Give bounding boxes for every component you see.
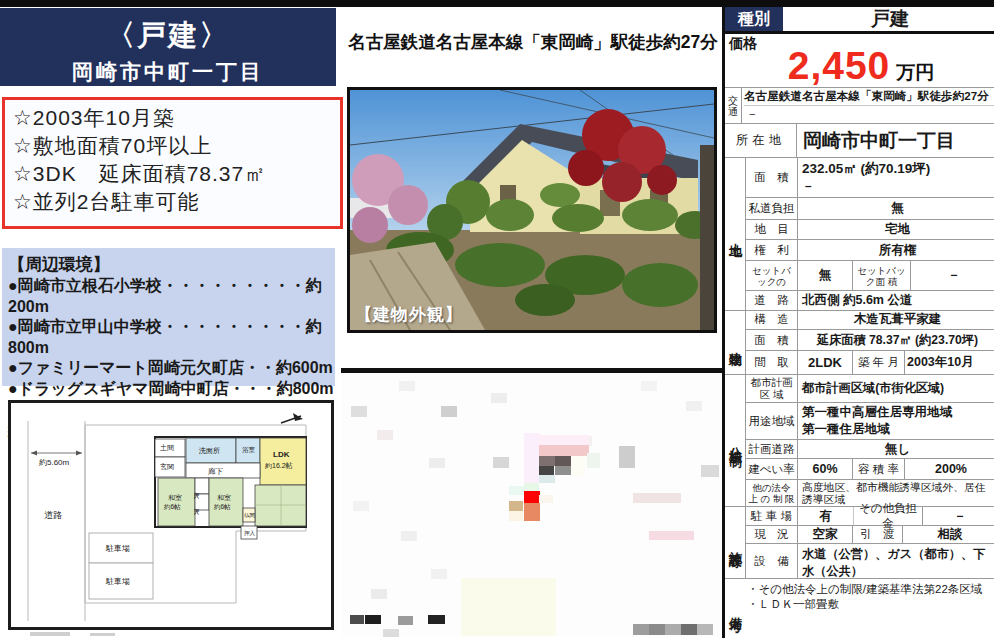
map-mosaic-cell [649,531,694,540]
north-arrow-icon [281,413,303,423]
remarks-line2: ・ＬＤＫ一部畳敷 [747,597,994,612]
group-label-land: 土地 [725,158,746,310]
ldk-size: 約16.2帖 [265,462,293,470]
map-mosaic-cell [539,445,589,456]
butsuma-label: 仏間 [244,512,255,519]
road-label: 道路 [44,510,62,520]
road-facing-value: 北西側 約5.6m 公道 [798,291,994,310]
land-area-value2: － [802,178,814,195]
planned-road-label: 計画道路 [746,440,798,458]
building-area-value: 延床面積 78.37㎡ (約23.70坪) [798,330,994,351]
rights-value: 所有権 [798,240,994,260]
coverage-value: 60% [798,459,853,479]
map-mosaic-cell [509,511,523,521]
map-mosaic-cell [377,430,393,440]
genkan-label: 玄関 [160,463,174,470]
group-label-facility: 施設等 [725,507,746,578]
map-mosaic-cell [633,493,681,503]
exterior-photo: 【建物外観】 [347,87,717,333]
parking-value: 有 [798,507,853,525]
map-mosaic-cell [539,475,555,483]
map-mosaic-cell [539,435,589,445]
map-mosaic-cell [353,501,369,511]
closet-bottom-label: 押入 [244,530,256,536]
map-mosaic-cell [350,615,364,624]
photo-caption: 【建物外観】 [355,303,463,326]
type-label: 種別 [725,7,783,31]
map-mosaic-cell [665,624,681,635]
map-mosaic-cell [493,457,509,468]
bath-label: 浴室 [242,446,256,454]
station-access-text: 名古屋鉄道名古屋本線「東岡崎」駅徒歩約27分 [348,30,718,54]
other-fee-value: － [923,507,994,525]
built-date-value: 2003年10月 [905,351,994,374]
group-remarks: 備考 ・その他法令上の制限/建築基準法第22条区域 ・ＬＤＫ一部畳敷 [725,579,994,638]
map-mosaic-cell [524,433,540,483]
highlights-box: ☆2003年10月築 ☆敷地面積70坪以上 ☆3DK 延床面積78.37㎡ ☆並… [2,97,343,229]
road-facing-label: 道 路 [746,291,798,310]
blurred-map [341,368,722,637]
spec-table: 種別 戸建 価格 2,450万円 交通 名古屋鉄道名古屋本線「東岡崎」駅徒歩約2… [722,7,994,638]
group-label-remarks: 備考 [725,579,745,638]
handover-value: 相談 [903,526,994,543]
row-address: 所在地 岡崎市中町一丁目 [725,124,994,158]
scan-smudge [30,632,70,636]
map-mosaic-cell [539,466,554,475]
layout-label: 間 取 [746,351,798,374]
access-line2: － [744,105,994,123]
parking-label: 駐 車 場 [746,507,798,525]
planned-road-value: 無し [798,440,994,458]
surroundings-item: ●ドラッグスギヤマ岡崎中町店・・・約800m [8,379,335,400]
map-mosaic-cell [365,615,381,624]
property-type-header: 〈戸建〉 岡崎市中町一丁目 [0,8,336,86]
map-mosaic-cell [351,406,367,417]
map-mosaic-cell [701,465,719,477]
land-category-value: 宅地 [798,220,994,240]
map-mosaic-cell [401,531,417,541]
map-mosaic-cell [697,624,713,635]
built-date-label: 築 年 月 [853,351,905,374]
far-label: 容 積 率 [853,459,905,479]
land-area-value: 232.05㎡ (約70.19坪) [802,160,930,178]
group-regulation: 公法規制 都市計画区 域 都市計画区域(市街化区域) 用途地域 第一種中高層住居… [725,375,994,507]
map-mosaic-cell [429,458,445,468]
property-location: 岡崎市中町一丁目 [0,58,336,86]
map-mosaic-cell [555,456,571,466]
map-mosaic-cell [587,453,600,468]
access-label: 交通 [725,88,742,123]
map-mosaic-cell [524,483,539,491]
map-mosaic-cell [371,589,387,599]
map-mosaic-cell [428,615,445,624]
group-land: 土地 面 積 232.05㎡ (約70.19坪) － 私道負担 無 地 目 宅地 [725,158,994,311]
map-mosaic-cell [686,401,702,411]
map-mosaic-cell [383,629,399,637]
map-mosaic-cell [555,466,571,475]
setback-label: セットバックの [746,261,798,290]
land-category-label: 地 目 [746,220,798,240]
current-state-value: 空家 [798,526,853,543]
address-value: 岡崎市中町一丁目 [797,124,994,157]
washitsu-center-label: 和室 [217,494,231,501]
map-mosaic-cell [571,456,585,476]
map-mosaic-cell [633,624,649,635]
group-label-regulation: 公法規制 [725,375,746,506]
map-mosaic-cell [441,406,457,417]
setback-value: 無 [798,261,853,290]
real-estate-flyer: 〈戸建〉 岡崎市中町一丁目 ☆2003年10月築 ☆敷地面積70坪以上 ☆3DK… [0,0,994,638]
surroundings-item: ●岡崎市立甲山中学校・・・・・・・・・約800m [8,317,335,358]
exterior-photo-art [350,90,714,330]
city-planning-label: 都市計画区 域 [746,375,798,402]
utilities-label: 設 備 [746,544,798,578]
price-unit: 万円 [896,62,934,83]
land-area-label: 面 積 [746,158,798,197]
surroundings-box: 【周辺環境】 ●岡崎市立根石小学校・・・・・・・・・約200m ●岡崎市立甲山中… [2,248,335,386]
group-facility: 施設等 駐 車 場 有 その他負担金 － 現 況 空家 引 渡 相談 設 備 水… [725,507,994,579]
coverage-label: 建ぺい率 [746,459,798,479]
access-line1: 名古屋鉄道名古屋本線「東岡崎」駅徒歩約27分 [744,89,994,104]
private-road-value: 無 [798,198,994,219]
floor-plan-drawing: 約5.60m 道路 駐車場 駐車場 土間 [11,403,331,627]
map-mosaic-cell [431,569,447,579]
structure-label: 構 造 [746,311,798,329]
parking-upper-label: 駐車場 [105,544,130,553]
zoning-value1: 第一種中高層住居専用地域 [802,404,952,421]
private-road-label: 私道負担 [746,198,798,219]
map-mosaic-cell [539,456,555,466]
ldk-label: LDK [273,450,290,459]
rights-label: 権 利 [746,240,798,260]
address-label: 所在地 [725,124,797,157]
handover-label: 引 渡 [853,526,903,543]
scan-smudge [90,633,115,636]
current-state-label: 現 況 [746,526,798,543]
washitsu-left-size: 約6帖 [164,503,181,511]
map-mosaic-cell [509,501,523,511]
building-area-label: 面 積 [746,330,798,351]
washitsu-center-size: 約6帖 [214,503,231,511]
washitsu-left-label: 和室 [168,494,182,501]
highlight-line: ☆3DK 延床面積78.37㎡ [13,160,338,188]
map-mosaic-cell [399,381,415,391]
property-type: 〈戸建〉 [0,16,336,56]
city-planning-value: 都市計画区域(市街化区域) [798,375,994,402]
doma-label: 土間 [160,444,174,452]
road-width-label: 約5.60m [39,458,70,467]
price-amount: 2,450 [788,44,891,87]
highlight-line: ☆2003年10月築 [13,104,338,132]
row-access: 交通 名古屋鉄道名古屋本線「東岡崎」駅徒歩約27分 － [725,88,994,124]
setback-area-label: セットバック面 積 [853,261,911,290]
floor-plan: 約5.60m 道路 駐車場 駐車場 土間 [8,400,334,630]
highlight-line: ☆並列2台駐車可能 [13,188,338,216]
map-mosaic-cell [509,486,524,495]
surroundings-item: ●ファミリーマート岡崎元欠町店・・約600m [8,358,335,379]
map-mosaic-cell [649,624,665,635]
row-price: 価格 2,450万円 [725,34,994,88]
zoning-label: 用途地域 [746,403,798,440]
surroundings-title: 【周辺環境】 [8,253,335,276]
map-mosaic-cell [398,616,413,625]
map-mosaic-cell [641,381,657,391]
other-fee-label: その他負担金 [853,507,923,525]
group-label-building: 建物 [725,311,746,374]
map-mosaic-cell [491,393,507,403]
map-mosaic-cell [461,578,556,636]
parking-lower-label: 駐車場 [105,577,130,586]
senmen-label: 洗面所 [198,447,220,455]
map-mosaic-cell [619,446,635,468]
hall-label: 廊下 [208,467,224,476]
setback-area-value: － [911,261,994,290]
map-mosaic-cell [681,624,697,635]
group-building: 建物 構 造 木造瓦葺平家建 面 積 延床面積 78.37㎡ (約23.70坪)… [725,311,994,375]
top-black-bar [0,0,994,7]
other-laws-label: 他の法令上 の 制 限 [746,480,798,506]
highlight-line: ☆敷地面積70坪以上 [13,132,338,160]
map-mosaic-cell [524,503,540,521]
surroundings-item: ●岡崎市立根石小学校・・・・・・・・・約200m [8,276,335,317]
layout-value: 2LDK [798,351,853,374]
row-type: 種別 戸建 [725,7,994,34]
zoning-value2: 第一種住居地域 [802,421,890,438]
map-mosaic-cell [524,491,540,503]
far-value: 200% [905,459,994,479]
utilities-value: 水道（公営）、ガス（都市）、下水（公共） [798,544,994,578]
remarks-line1: ・その他法令上の制限/建築基準法第22条区域 [747,582,994,597]
type-value: 戸建 [783,7,994,31]
map-mosaic-cell [539,495,553,503]
structure-value: 木造瓦葺平家建 [798,311,994,329]
